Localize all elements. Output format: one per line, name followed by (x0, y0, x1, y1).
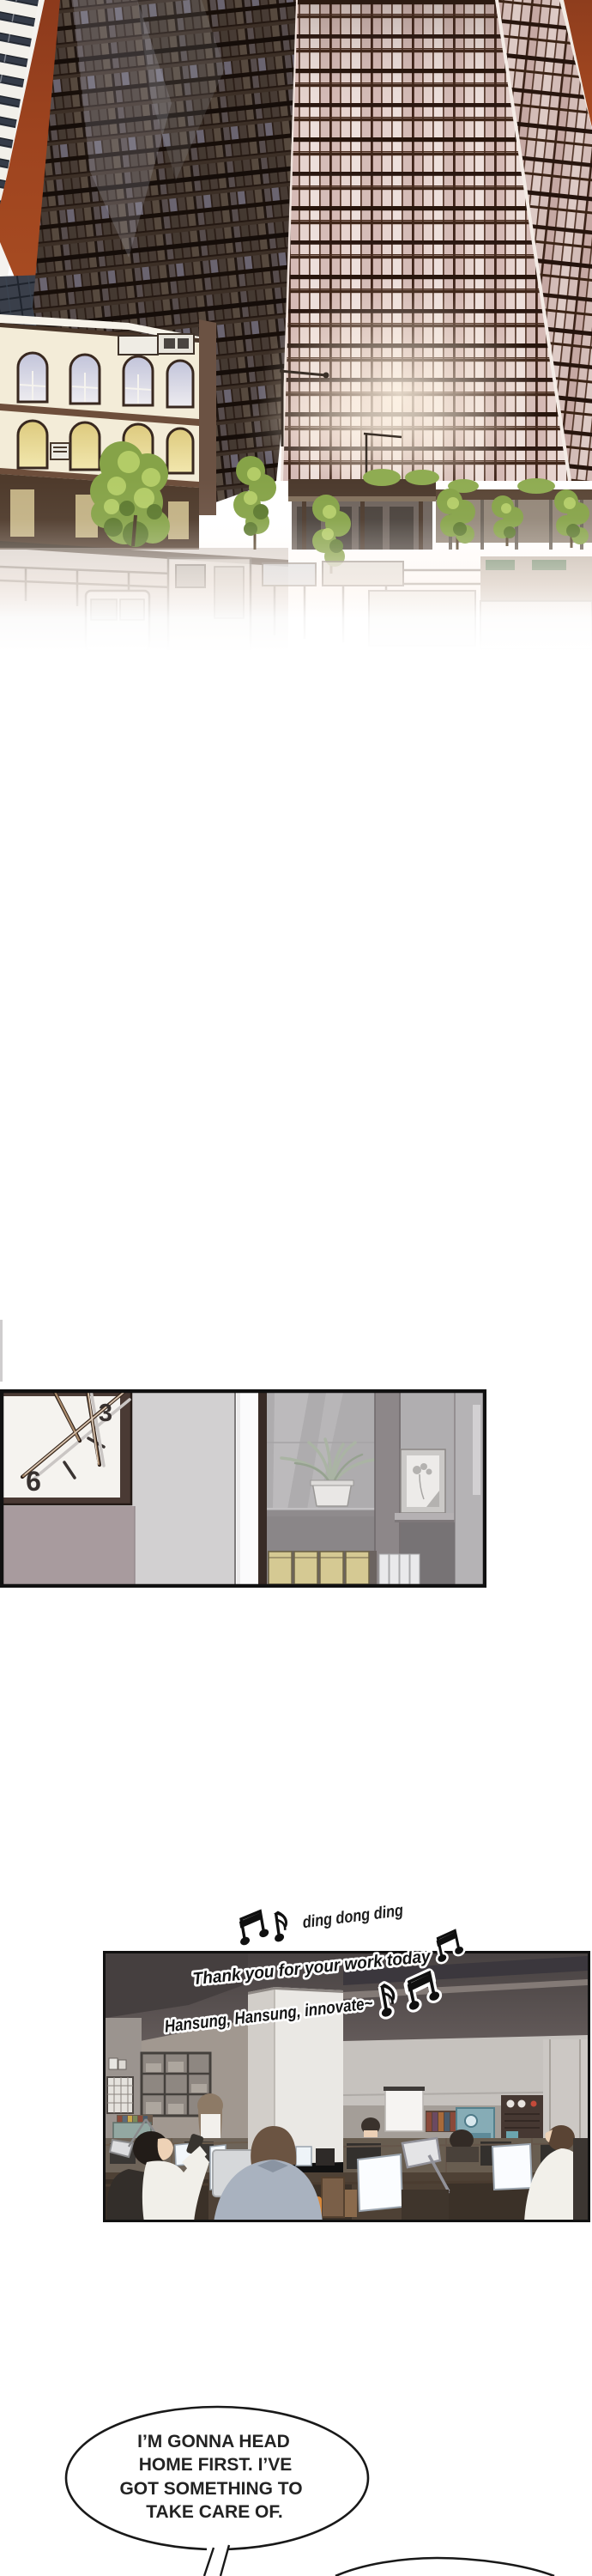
svg-text:GOT SOMETHING TO: GOT SOMETHING TO (119, 2479, 302, 2499)
svg-text:6: 6 (26, 1466, 41, 1497)
svg-text:3: 3 (99, 1400, 112, 1427)
svg-text:HOME FIRST. I’VE: HOME FIRST. I’VE (139, 2455, 293, 2475)
svg-text:ding dong ding: ding dong ding (301, 1901, 404, 1932)
svg-text:TAKE CARE OF.: TAKE CARE OF. (146, 2502, 282, 2522)
svg-text:I’M GONNA HEAD: I’M GONNA HEAD (137, 2432, 290, 2451)
